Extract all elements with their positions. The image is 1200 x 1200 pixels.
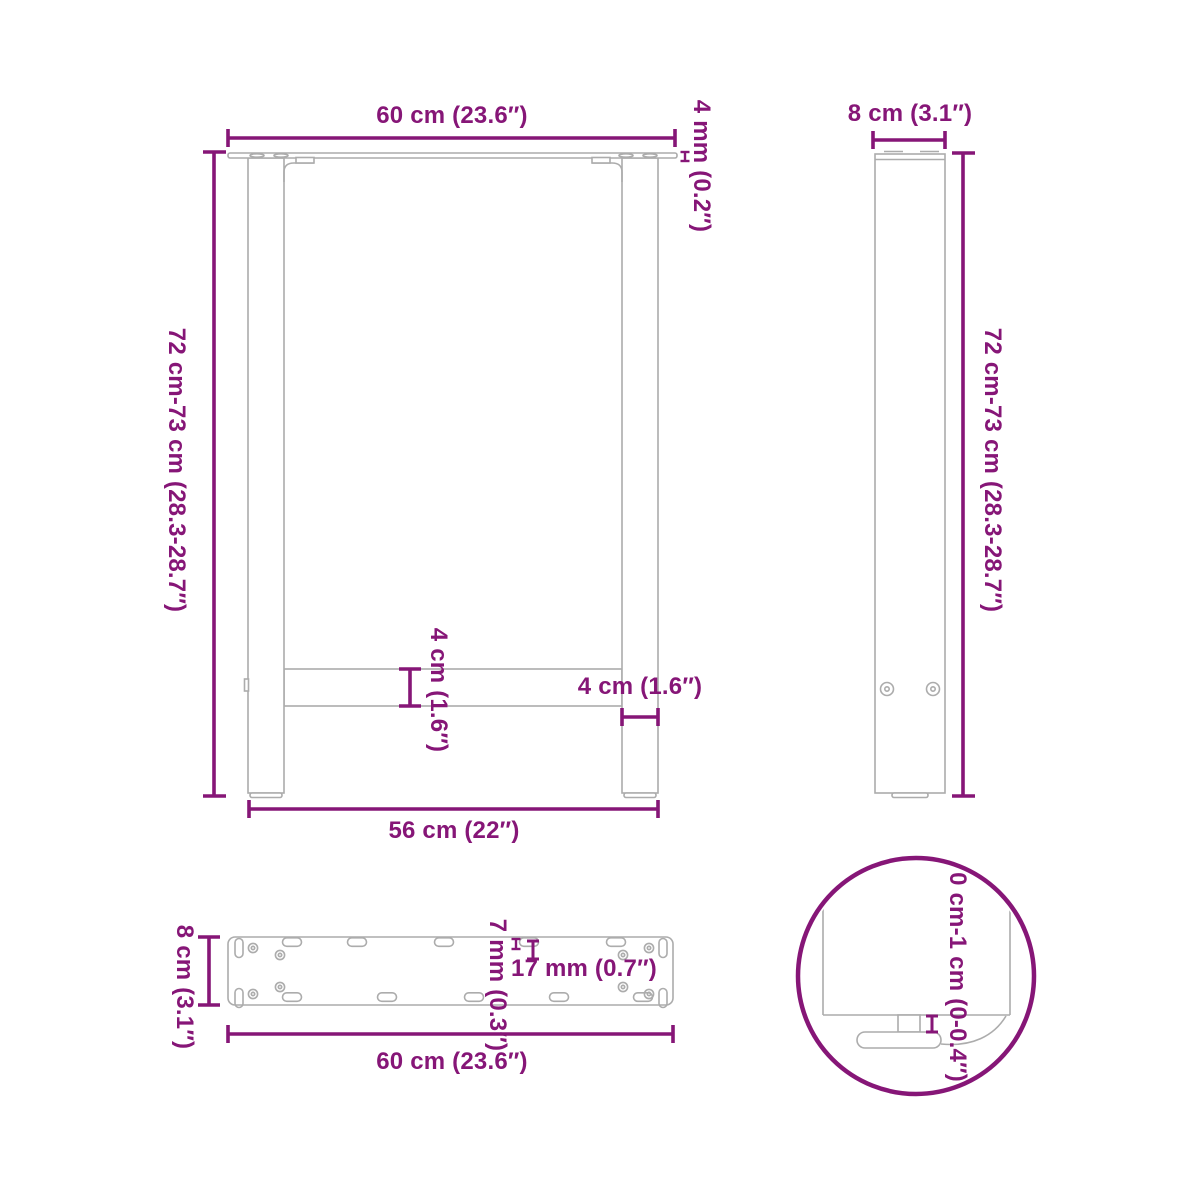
front-width-top-label: 60 cm (23.6″) xyxy=(376,104,528,128)
detail-foot-stem xyxy=(898,1015,920,1032)
front-leg-width-label: 4 cm (1.6″) xyxy=(578,675,702,699)
side-depth-label: 8 cm (3.1″) xyxy=(848,102,972,126)
plate-hole-length-label: 17 mm (0.7″) xyxy=(511,957,657,981)
plate-depth-label: 8 cm (3.1″) xyxy=(172,925,196,1049)
side-height-label: 72 cm-73 cm (28.3-28.7″) xyxy=(980,328,1004,612)
front-plate-thickness-label: 4 mm (0.2″) xyxy=(689,100,713,232)
front-view-drawing xyxy=(228,153,677,798)
front-height-label: 72 cm-73 cm (28.3-28.7″) xyxy=(164,328,188,612)
front-left-leg xyxy=(248,158,284,793)
detail-zoom-circle xyxy=(798,858,1034,1094)
detail-view-dimensions xyxy=(926,1016,938,1032)
detail-adjustment-range-label: 0 cm-1 cm (0-0.4″) xyxy=(945,872,969,1082)
front-left-bracket xyxy=(284,163,314,182)
side-view-drawing xyxy=(875,152,945,798)
front-right-foot xyxy=(624,793,656,798)
side-leg-column xyxy=(875,154,945,793)
detail-foot-pad xyxy=(857,1032,941,1048)
front-right-bracket xyxy=(592,163,622,182)
front-right-bracket-tab xyxy=(592,158,610,164)
side-foot xyxy=(892,793,928,798)
plate-hole-width-label: 7 mm (0.3″) xyxy=(485,919,509,1051)
front-crossbar-thickness-label: 4 cm (1.6″) xyxy=(426,628,450,752)
detail-view-drawing xyxy=(823,860,1010,1048)
dimension-diagram: 60 cm (23.6″) 4 mm (0.2″) 72 cm-73 cm (2… xyxy=(0,0,1200,1200)
detail-view xyxy=(798,858,1034,1094)
plate-width-label: 60 cm (23.6″) xyxy=(376,1050,528,1074)
front-left-foot xyxy=(250,793,282,798)
front-crossbar xyxy=(284,669,622,706)
front-leg-clip xyxy=(245,679,249,691)
front-width-bottom-label: 56 cm (22″) xyxy=(388,819,519,843)
front-left-bracket-tab xyxy=(296,158,314,164)
